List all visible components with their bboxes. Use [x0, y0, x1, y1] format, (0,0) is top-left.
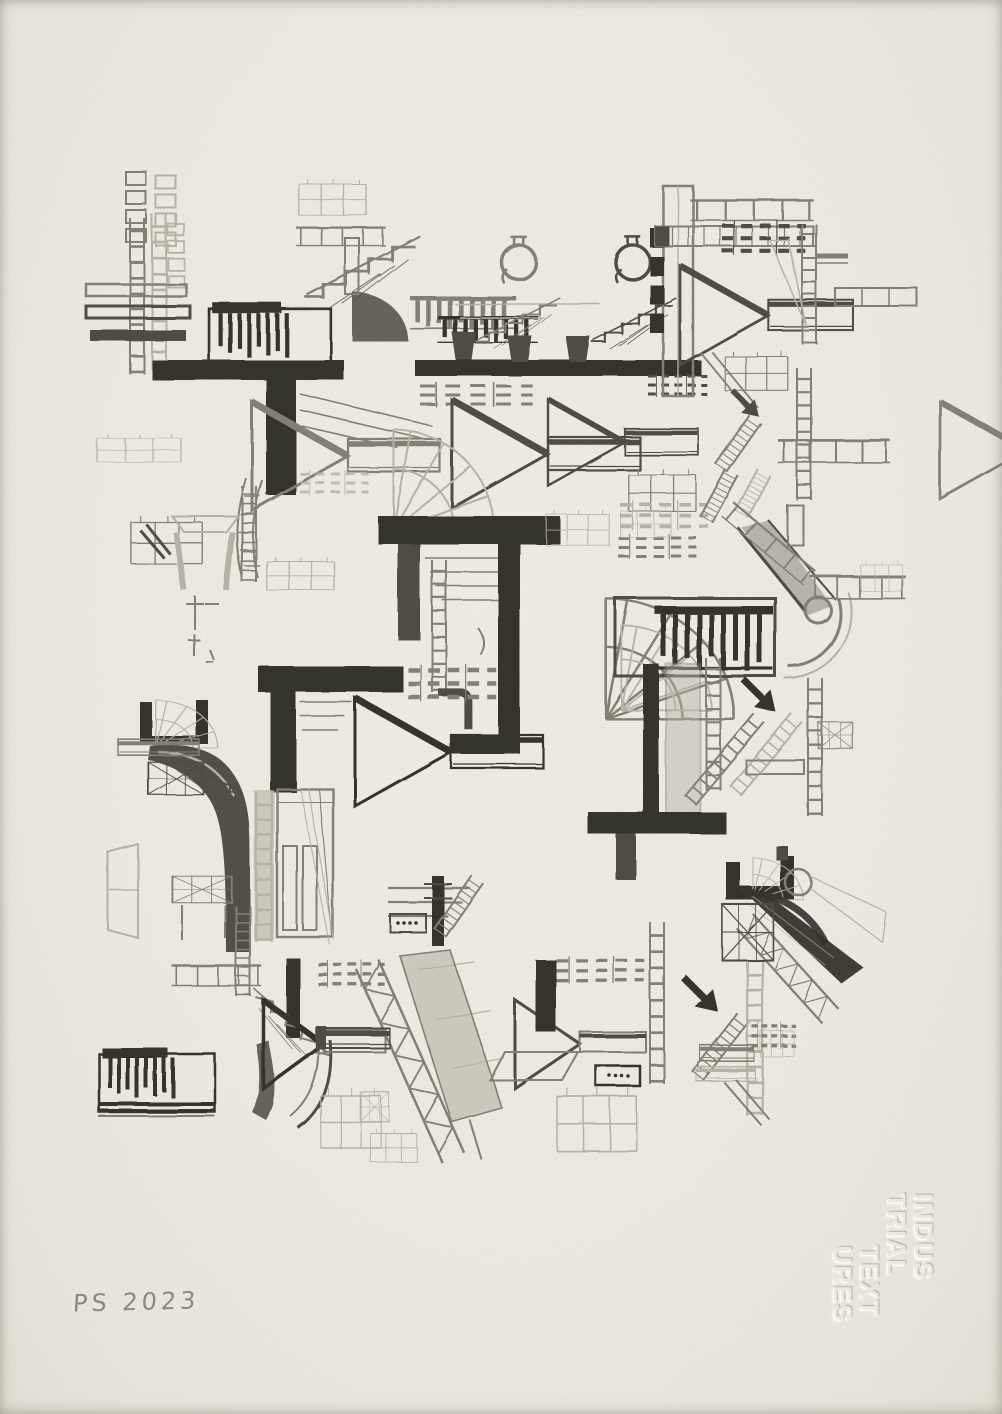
emboss-line: URES	[828, 1193, 855, 1343]
paper-sheet: INDUS TRIAL TEXT URES PS 2023	[0, 0, 1002, 1414]
emboss-line: INDUS	[909, 1193, 936, 1343]
artist-signature: PS 2023	[72, 1286, 200, 1317]
emboss-line: TEXT	[855, 1193, 882, 1343]
emboss-line: TRIAL	[882, 1193, 909, 1343]
emboss-watermark: INDUS TRIAL TEXT URES	[824, 1193, 936, 1343]
